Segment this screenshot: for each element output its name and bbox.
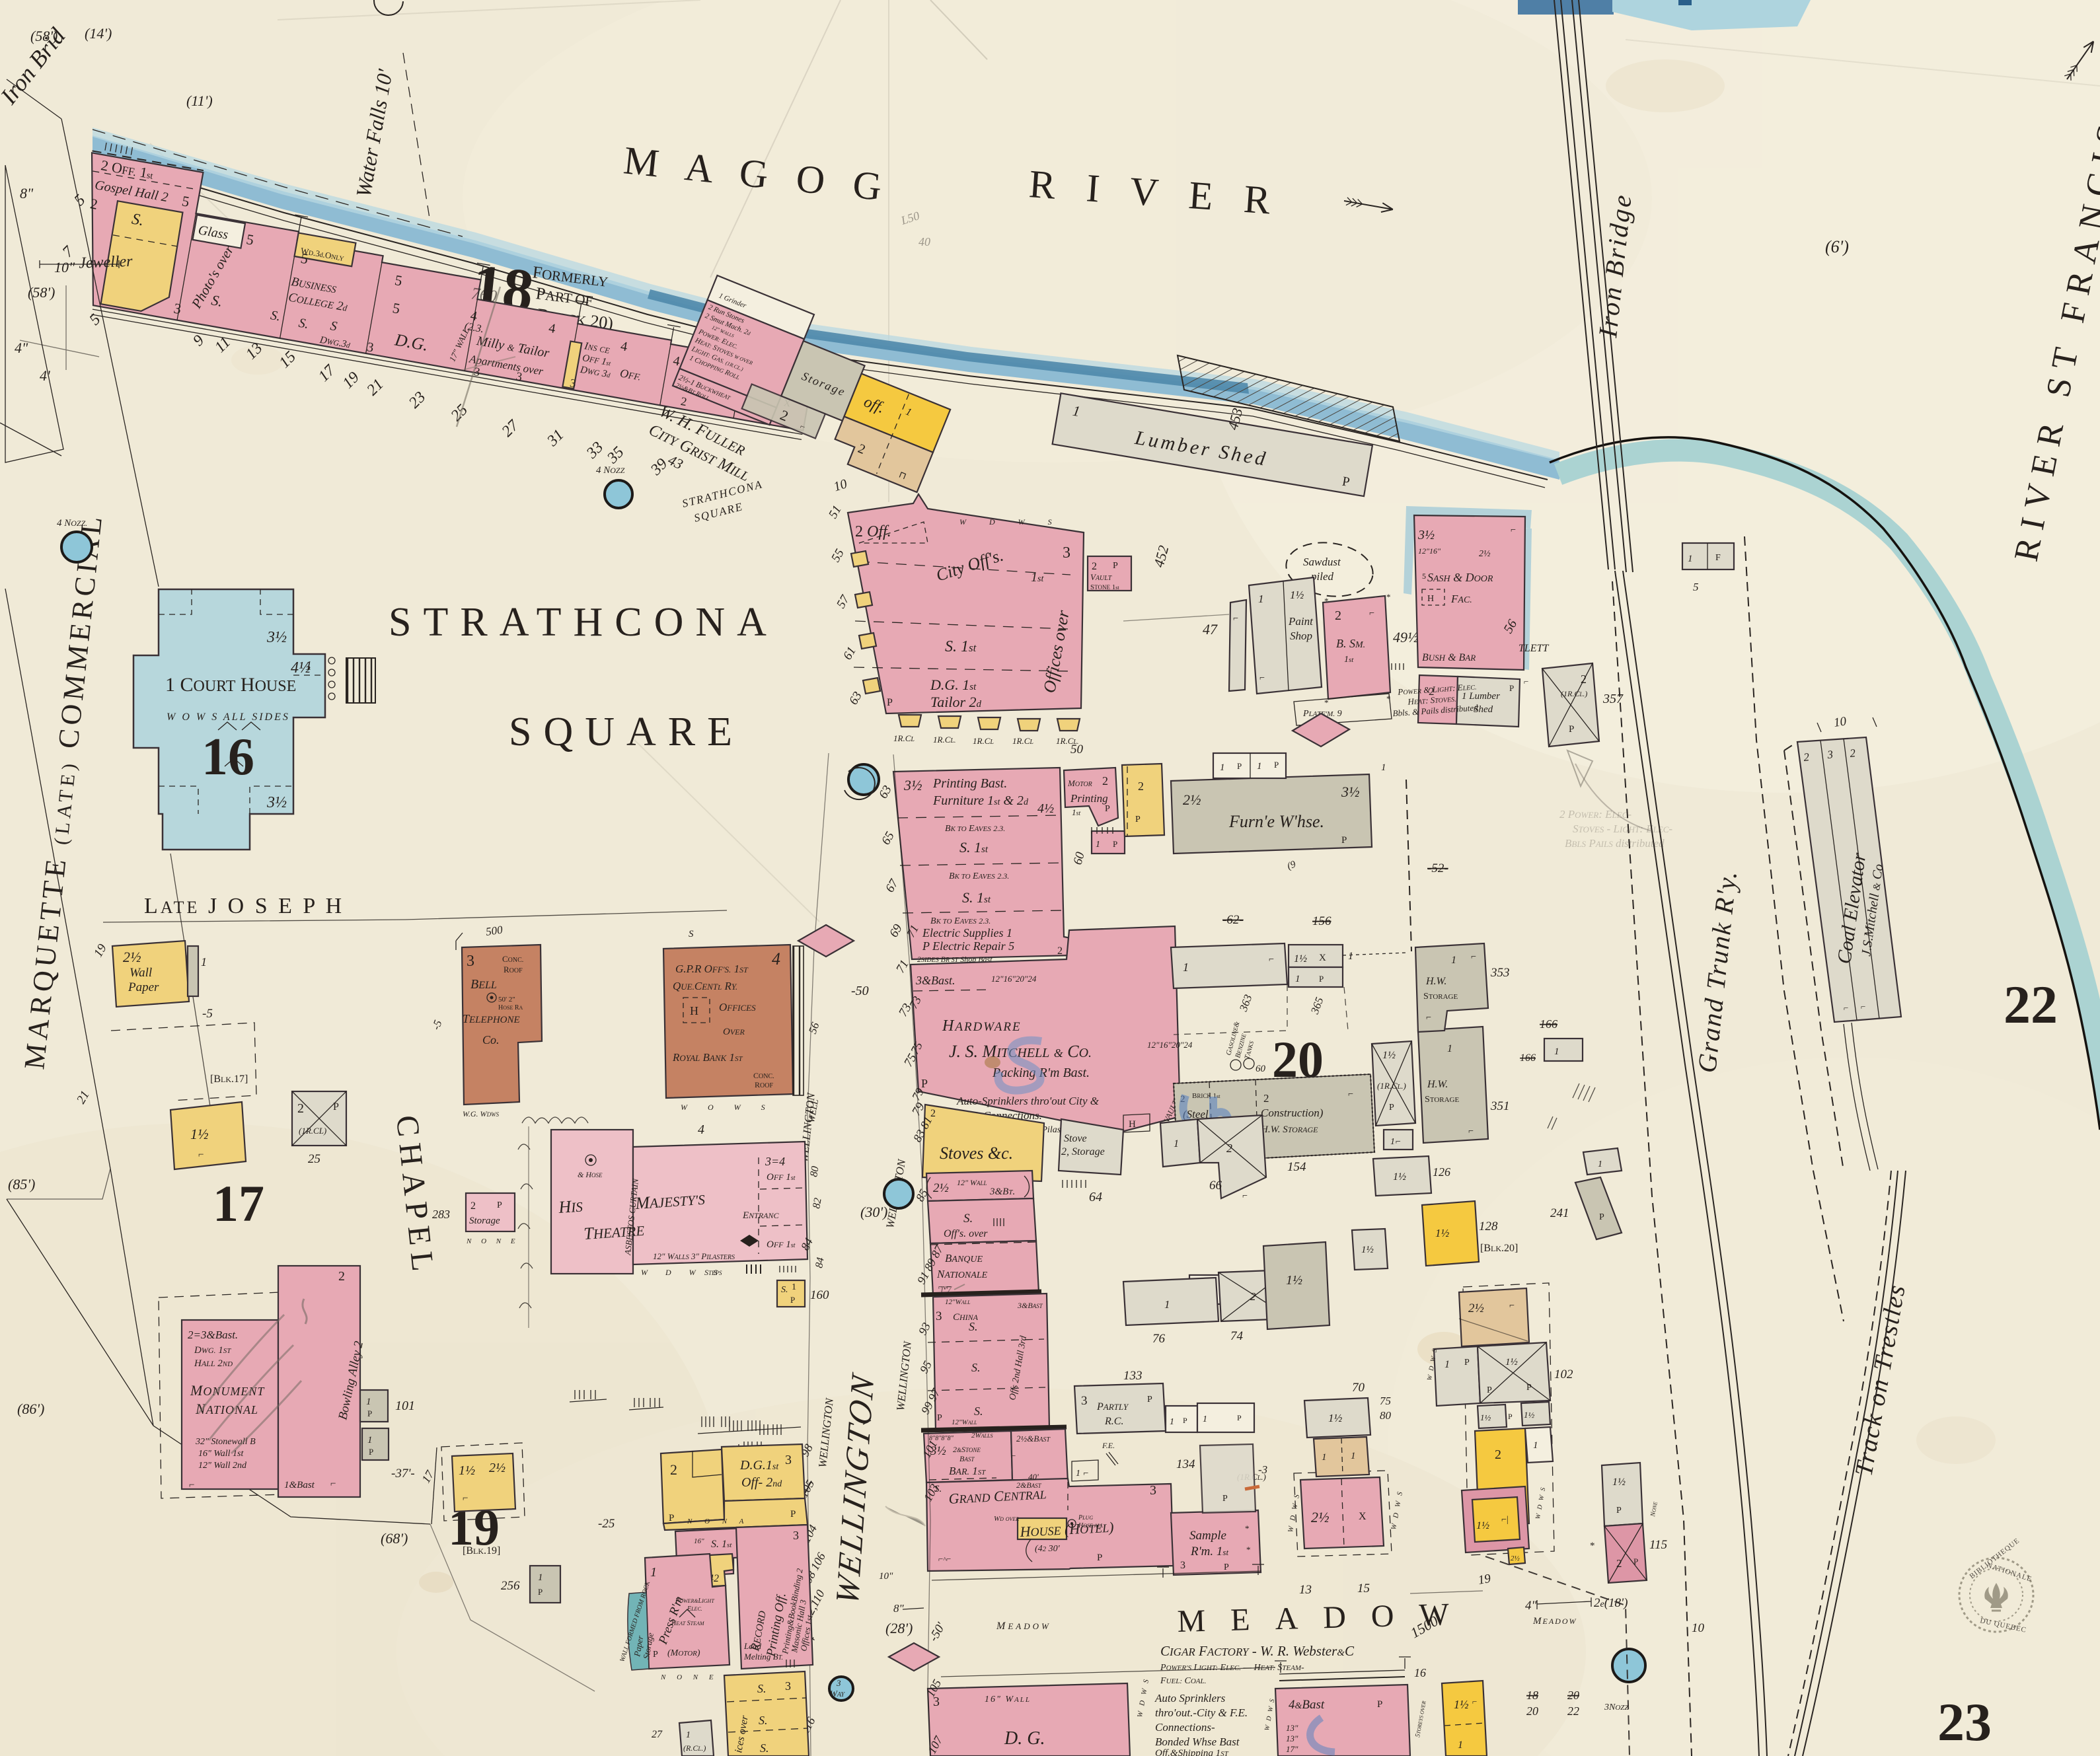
svg-text:BBLS PAILS distributed: BBLS PAILS distributed <box>1565 837 1665 850</box>
svg-text:10: 10 <box>1833 714 1848 730</box>
svg-text:12"16"20"24: 12"16"20"24 <box>991 974 1037 984</box>
svg-text:BK TO EAVES 2.3.: BK TO EAVES 2.3. <box>945 824 1005 834</box>
svg-text:P: P <box>1222 1494 1228 1504</box>
svg-text:2 Off.: 2 Off. <box>855 523 891 540</box>
svg-text:(11'): (11') <box>186 92 213 109</box>
svg-text:1: 1 <box>1170 1417 1174 1427</box>
svg-text:MONUMENT: MONUMENT <box>190 1382 265 1399</box>
svg-text:256: 256 <box>501 1579 520 1593</box>
svg-text:FUEL: COAL.: FUEL: COAL. <box>1160 1676 1206 1686</box>
svg-text:2=3&Bast.: 2=3&Bast. <box>188 1329 238 1341</box>
svg-text:2½: 2½ <box>1311 1509 1330 1525</box>
svg-text:[BLK.17]: [BLK.17] <box>210 1074 248 1085</box>
svg-text:1: 1 <box>792 1282 796 1292</box>
svg-text:P: P <box>1464 1358 1470 1368</box>
svg-text:STEPS: STEPS <box>704 1268 722 1277</box>
svg-text:N O N E: N O N E <box>466 1237 519 1245</box>
svg-text:CONC.: CONC. <box>753 1071 774 1080</box>
svg-text:⌐: ⌐ <box>1509 1301 1515 1311</box>
svg-text:H: H <box>690 1004 698 1017</box>
svg-text:128: 128 <box>1479 1220 1498 1233</box>
svg-text:23: 23 <box>1937 1692 1992 1752</box>
svg-text:Furniture 1st & 2d: Furniture 1st & 2d <box>932 793 1029 808</box>
svg-text:P: P <box>937 1413 942 1423</box>
svg-text:160: 160 <box>810 1288 829 1302</box>
svg-text:TLETT: TLETT <box>1519 643 1549 654</box>
svg-text:(85'): (85') <box>8 1176 35 1192</box>
svg-text:Sample: Sample <box>1189 1529 1226 1543</box>
svg-text:80: 80 <box>808 1165 821 1178</box>
svg-text:SQUARE: SQUARE <box>509 710 744 754</box>
svg-text:P: P <box>1274 760 1279 770</box>
svg-text:P: P <box>1135 815 1141 824</box>
svg-text:353: 353 <box>1490 966 1510 980</box>
svg-text:*: * <box>1245 1523 1250 1533</box>
svg-text:⌐: ⌐ <box>1011 1451 1016 1461</box>
svg-text:1: 1 <box>1322 1452 1327 1463</box>
svg-text:2, Storage: 2, Storage <box>1061 1146 1105 1157</box>
svg-text:P: P <box>1341 835 1347 846</box>
svg-text:8": 8" <box>893 1602 905 1615</box>
svg-text:16: 16 <box>1414 1666 1426 1679</box>
svg-text:80: 80 <box>1380 1409 1392 1422</box>
svg-text:STORAGE: STORAGE <box>1425 1095 1459 1105</box>
svg-text:F.E.: F.E. <box>1102 1441 1115 1450</box>
svg-text:⌐: ⌐ <box>1242 1191 1248 1201</box>
svg-text:Connections-: Connections- <box>1155 1721 1215 1734</box>
svg-text:4": 4" <box>1525 1599 1538 1613</box>
svg-text:1&Bast: 1&Bast <box>284 1480 315 1490</box>
svg-text:P: P <box>1105 804 1110 814</box>
svg-text:P: P <box>1224 1562 1229 1572</box>
svg-text:154: 154 <box>1287 1160 1306 1174</box>
svg-text:357: 357 <box>1602 692 1624 706</box>
svg-text:4: 4 <box>698 1122 704 1137</box>
svg-text:2: 2 <box>930 1108 936 1119</box>
svg-text:2: 2 <box>297 1101 304 1116</box>
svg-text:3: 3 <box>1826 748 1833 761</box>
svg-text:Auto-Sprinklers thro'out City: Auto-Sprinklers thro'out City & <box>956 1095 1100 1107</box>
svg-text:Construction): Construction) <box>1261 1107 1324 1119</box>
svg-text:18: 18 <box>1526 1689 1538 1702</box>
svg-text:16" Wall 1st: 16" Wall 1st <box>198 1449 244 1459</box>
svg-text:1: 1 <box>1220 762 1225 773</box>
svg-text:15: 15 <box>1357 1582 1370 1595</box>
svg-text:1½: 1½ <box>1480 1412 1491 1422</box>
svg-text:3&Bast.: 3&Bast. <box>915 974 956 987</box>
svg-text:84: 84 <box>813 1257 827 1269</box>
svg-text:166: 166 <box>1540 1017 1557 1031</box>
svg-text:3: 3 <box>1081 1394 1088 1408</box>
svg-text:POWER'S LIGHT: ELEC. — HEAT: S: POWER'S LIGHT: ELEC. — HEAT: STEAM- <box>1160 1663 1304 1673</box>
svg-text:CIGAR FACTORY - W. R. Webster&: CIGAR FACTORY - W. R. Webster&C <box>1160 1643 1355 1659</box>
svg-text:2½: 2½ <box>1183 791 1201 808</box>
svg-text:-50: -50 <box>851 984 869 998</box>
svg-text:16: 16 <box>202 728 254 786</box>
svg-text:X: X <box>1359 1511 1367 1522</box>
svg-text:2: 2 <box>1250 1290 1256 1303</box>
svg-text:17: 17 <box>213 1175 264 1232</box>
svg-text:(30'): (30') <box>860 1204 887 1220</box>
svg-text:⌐: ⌐ <box>1861 1002 1865 1011</box>
svg-text:HOSE RA: HOSE RA <box>498 1004 523 1011</box>
svg-text:H.W.: H.W. <box>1425 976 1446 987</box>
svg-text:3½: 3½ <box>903 777 922 793</box>
svg-text:1: 1 <box>1203 1414 1207 1424</box>
svg-text:1: 1 <box>1258 593 1264 605</box>
svg-text:3: 3 <box>1150 1483 1156 1498</box>
svg-text:1: 1 <box>367 1435 373 1445</box>
svg-text:⌐: ⌐ <box>1233 614 1238 624</box>
svg-text:PLUG: PLUG <box>1078 1514 1093 1521</box>
svg-text:101: 101 <box>395 1399 415 1413</box>
svg-text:⌐: ⌐ <box>1269 955 1274 965</box>
svg-text:STOVES - LIGHT: ELEC-: STOVES - LIGHT: ELEC- <box>1573 823 1672 835</box>
svg-text:2: 2 <box>1092 561 1097 572</box>
svg-text:2: 2 <box>1616 1557 1622 1570</box>
svg-text:⌐: ⌐ <box>330 1479 336 1489</box>
svg-text:S.: S. <box>781 1285 788 1295</box>
svg-text:2½: 2½ <box>1511 1555 1520 1562</box>
svg-text:12"WALL: 12"WALL <box>952 1418 977 1426</box>
svg-text:1: 1 <box>650 1565 657 1580</box>
svg-text:2: 2 <box>338 1269 345 1284</box>
svg-text:S: S <box>689 929 699 939</box>
svg-text:2: 2 <box>1263 1092 1269 1105</box>
svg-text:P: P <box>1113 839 1117 849</box>
svg-text:ROOF: ROOF <box>755 1080 773 1089</box>
svg-text:17": 17" <box>1286 1744 1298 1754</box>
svg-text:P: P <box>1097 1553 1102 1563</box>
svg-text:⌐: ⌐ <box>198 1150 204 1160</box>
svg-text:4": 4" <box>15 340 28 356</box>
svg-text:P: P <box>1508 1412 1513 1421</box>
svg-text:W D W S: W D W S <box>959 517 1063 527</box>
svg-text:Electric Supplies 1: Electric Supplies 1 <box>922 926 1012 939</box>
svg-text:(28'): (28') <box>885 1620 913 1636</box>
svg-text:1: 1 <box>305 659 312 673</box>
svg-text:W O W S ALL SIDES: W O W S ALL SIDES <box>167 712 290 723</box>
svg-text:Furn'e W'hse.: Furn'e W'hse. <box>1228 812 1324 831</box>
svg-text:1: 1 <box>1381 762 1386 773</box>
svg-text:W.G. WDWS: W.G. WDWS <box>463 1109 500 1118</box>
svg-text:4 NOZZ.: 4 NOZZ. <box>57 518 87 529</box>
svg-text:3: 3 <box>785 1679 791 1693</box>
svg-text:3: 3 <box>936 1309 942 1323</box>
svg-text:(6'): (6') <box>1825 237 1849 256</box>
svg-text:Jeweller: Jeweller <box>79 253 133 272</box>
svg-text:2: 2 <box>1495 1447 1501 1462</box>
svg-text:2: 2 <box>1581 673 1587 686</box>
svg-text:17: 17 <box>938 1284 952 1298</box>
svg-text:2½: 2½ <box>1468 1301 1484 1315</box>
svg-text:2: 2 <box>1138 780 1144 793</box>
svg-text:3½: 3½ <box>1341 784 1360 800</box>
svg-text:BAST: BAST <box>959 1454 975 1463</box>
svg-text:MEADOW: MEADOW <box>1532 1616 1577 1627</box>
svg-text:⌐: ⌐ <box>1348 1089 1353 1099</box>
svg-text:1½: 1½ <box>1476 1520 1489 1531</box>
svg-text:241: 241 <box>1550 1206 1569 1220</box>
svg-text:(14'): (14') <box>85 25 112 42</box>
svg-text:P: P <box>497 1200 502 1210</box>
svg-text:115: 115 <box>1649 1538 1667 1552</box>
svg-text:3½: 3½ <box>1417 528 1435 542</box>
svg-text:10: 10 <box>1692 1621 1705 1635</box>
svg-text:1st: 1st <box>1344 655 1354 665</box>
svg-text:20: 20 <box>1526 1704 1538 1718</box>
svg-text:2: 2 <box>1057 945 1063 957</box>
svg-text:1½: 1½ <box>190 1126 209 1142</box>
svg-text:1½: 1½ <box>1286 1273 1302 1288</box>
svg-text:1: 1 <box>1598 1159 1602 1169</box>
svg-text:13: 13 <box>1299 1583 1312 1597</box>
svg-text:POWER&LIGHT: POWER&LIGHT <box>675 1597 714 1605</box>
svg-text:4': 4' <box>40 367 50 384</box>
svg-text:1: 1 <box>1348 951 1353 962</box>
svg-text:STRATHCONA: STRATHCONA <box>389 600 778 645</box>
svg-text:3&BT.: 3&BT. <box>989 1187 1015 1197</box>
svg-text:ROYAL BANK 1ST: ROYAL BANK 1ST <box>672 1051 743 1064</box>
svg-text:⌐: ⌐ <box>1369 608 1374 618</box>
svg-text:-52-: -52- <box>1427 861 1448 875</box>
svg-text:(58'): (58') <box>28 284 55 301</box>
svg-text:STONE 1st: STONE 1st <box>1090 583 1119 591</box>
svg-text:2e(18'): 2e(18') <box>1594 1596 1628 1610</box>
svg-text:ENTRANC: ENTRANC <box>742 1210 780 1221</box>
svg-text:H.W. STORAGE: H.W. STORAGE <box>1260 1124 1318 1135</box>
svg-text:12"WALL: 12"WALL <box>945 1298 971 1306</box>
svg-text:13": 13" <box>1286 1723 1298 1733</box>
svg-text:134: 134 <box>1176 1457 1195 1471</box>
svg-text:Printing: Printing <box>1070 792 1108 805</box>
svg-text:2½: 2½ <box>933 1181 949 1195</box>
svg-text:(1R.CL): (1R.CL) <box>299 1126 326 1136</box>
svg-text:P: P <box>1633 1556 1638 1566</box>
svg-text:Storage: Storage <box>469 1216 500 1226</box>
svg-text:HIS: HIS <box>557 1196 583 1217</box>
svg-text:BUSH & BAR: BUSH & BAR <box>1422 652 1476 663</box>
svg-text:⌐: ⌐ <box>1468 1126 1474 1136</box>
svg-text:133: 133 <box>1123 1369 1143 1383</box>
svg-text:1: 1 <box>1351 1451 1356 1461</box>
svg-text:R.C.: R.C. <box>1104 1416 1123 1427</box>
svg-text:P: P <box>1599 1212 1604 1222</box>
svg-text:P: P <box>1616 1506 1622 1516</box>
svg-text:P: P <box>1509 683 1514 693</box>
svg-text:75: 75 <box>1380 1395 1391 1407</box>
svg-text:1½: 1½ <box>1290 589 1304 601</box>
svg-text:P: P <box>1487 1385 1492 1395</box>
svg-text:126: 126 <box>1433 1165 1450 1179</box>
svg-text:500: 500 <box>485 924 504 938</box>
svg-text:D. G.: D. G. <box>1004 1728 1045 1749</box>
svg-text:3: 3 <box>836 1678 841 1688</box>
svg-text:S.: S. <box>974 1405 983 1418</box>
svg-text:13": 13" <box>1286 1734 1298 1743</box>
svg-text:BELL: BELL <box>470 977 497 992</box>
svg-text:OVER: OVER <box>723 1027 745 1037</box>
svg-text:Off's. over: Off's. over <box>944 1228 988 1239</box>
svg-text:STORAGE: STORAGE <box>1423 992 1458 1002</box>
svg-text:(58'): (58') <box>30 28 57 44</box>
svg-text:BK TO EAVES 2.3.: BK TO EAVES 2.3. <box>930 916 991 926</box>
svg-text:P: P <box>1377 1699 1382 1710</box>
svg-text:70: 70 <box>1352 1381 1365 1395</box>
svg-text:*: * <box>1386 592 1391 602</box>
svg-text:P: P <box>790 1295 795 1305</box>
svg-text:16": 16" <box>694 1537 704 1545</box>
svg-text:2WALLS: 2WALLS <box>971 1432 993 1440</box>
svg-text:DWG. 1ST: DWG. 1ST <box>194 1345 231 1356</box>
svg-text:P: P <box>367 1408 372 1418</box>
svg-text:Bonded Whse Bast: Bonded Whse Bast <box>1155 1736 1240 1748</box>
svg-text:3: 3 <box>1180 1560 1185 1571</box>
svg-text:25: 25 <box>308 1152 320 1166</box>
svg-text:2: 2 <box>1102 774 1108 787</box>
svg-text:OFFICES: OFFICES <box>719 1001 756 1013</box>
svg-text:66: 66 <box>1209 1179 1222 1192</box>
svg-text:P: P <box>887 697 893 708</box>
svg-text:⌐: ⌐ <box>1524 677 1528 686</box>
svg-text:Tailor 2d: Tailor 2d <box>930 694 982 710</box>
svg-text:3NOZZ: 3NOZZ <box>1604 1702 1629 1712</box>
svg-text:P: P <box>1237 761 1242 771</box>
svg-text:F: F <box>1715 553 1721 563</box>
svg-text:⌐: ⌐ <box>189 1480 194 1490</box>
svg-text:2½: 2½ <box>123 949 141 965</box>
svg-text:3=4: 3=4 <box>765 1155 785 1168</box>
svg-text:2: 2 <box>1226 1142 1232 1155</box>
svg-text:N O N E: N O N E <box>660 1673 718 1681</box>
svg-text:20: 20 <box>1567 1689 1579 1702</box>
svg-text:P: P <box>1237 1413 1242 1422</box>
svg-text:(86'): (86') <box>17 1401 44 1417</box>
svg-text:50: 50 <box>1070 743 1084 756</box>
svg-text:⌐|: ⌐| <box>1501 1515 1509 1525</box>
svg-text:Wall: Wall <box>130 966 152 980</box>
svg-text:P: P <box>790 1509 796 1519</box>
svg-text:3: 3 <box>785 1453 792 1467</box>
svg-text:2 POWER: ELEC-: 2 POWER: ELEC- <box>1559 808 1631 821</box>
svg-text:P: P <box>669 1513 674 1523</box>
svg-text:Off.&Shipping 1ST: Off.&Shipping 1ST <box>1155 1748 1229 1756</box>
svg-text:-37'-: -37'- <box>391 1467 415 1481</box>
svg-text:1½: 1½ <box>1382 1050 1396 1061</box>
svg-text:P: P <box>333 1101 339 1113</box>
svg-text:4 NOZZ: 4 NOZZ <box>596 465 625 476</box>
svg-text:P: P <box>1526 1383 1532 1393</box>
svg-text:166: 166 <box>1520 1052 1536 1064</box>
svg-text:2: 2 <box>1335 608 1341 623</box>
svg-text:Melting BT.: Melting BT. <box>743 1652 783 1662</box>
svg-text:3½: 3½ <box>266 629 287 646</box>
svg-text:27: 27 <box>652 1729 663 1740</box>
svg-text:*: * <box>1590 1541 1595 1551</box>
svg-text:12" Wall 2nd: 12" Wall 2nd <box>198 1461 247 1471</box>
svg-text:*: * <box>1324 596 1329 606</box>
svg-text:1: 1 <box>1447 1043 1452 1054</box>
svg-text:1½: 1½ <box>1612 1477 1626 1488</box>
svg-text:-25: -25 <box>598 1517 615 1531</box>
svg-text:82: 82 <box>811 1197 824 1210</box>
svg-text:1: 1 <box>1451 955 1456 966</box>
svg-text:Paper: Paper <box>128 980 159 994</box>
svg-text:PARTLY: PARTLY <box>1096 1401 1129 1412</box>
svg-text:LATE J O S E P H: LATE J O S E P H <box>144 894 344 918</box>
svg-text:(R.CL.): (R.CL.) <box>683 1743 706 1753</box>
svg-text:X: X <box>1319 953 1326 963</box>
svg-text:-3: -3 <box>1258 1463 1267 1476</box>
svg-text:(MOTOR): (MOTOR) <box>667 1648 700 1658</box>
svg-text:5: 5 <box>1693 581 1699 593</box>
svg-text:1: 1 <box>1554 1046 1559 1057</box>
svg-text:[BLK.20]: [BLK.20] <box>1480 1243 1518 1254</box>
svg-text:1½: 1½ <box>1361 1245 1374 1255</box>
svg-text:P: P <box>921 1077 928 1090</box>
svg-text:(68'): (68') <box>381 1530 408 1547</box>
svg-text:12"16": 12"16" <box>1418 546 1441 556</box>
svg-text:74: 74 <box>1230 1329 1244 1343</box>
svg-text:156: 156 <box>1312 914 1331 928</box>
svg-text:S.: S. <box>759 1714 768 1727</box>
svg-text:1½: 1½ <box>1435 1227 1450 1239</box>
svg-text:3: 3 <box>793 1529 799 1542</box>
svg-text:3&BAST: 3&BAST <box>1017 1301 1043 1310</box>
svg-text:⌐: ⌐ <box>1472 1697 1477 1706</box>
svg-text:P: P <box>369 1447 373 1457</box>
svg-text:Stove: Stove <box>1064 1133 1087 1144</box>
svg-text:1: 1 <box>1444 1359 1450 1370</box>
svg-text:thro'out.-City & F.E.: thro'out.-City & F.E. <box>1155 1706 1248 1719</box>
svg-text:47: 47 <box>1203 621 1218 638</box>
svg-text:⌐: ⌐ <box>1844 1003 1848 1013</box>
svg-text:76: 76 <box>1152 1332 1166 1346</box>
svg-text:N O N A: N O N A <box>687 1518 749 1525</box>
svg-text:1⌐: 1⌐ <box>1390 1137 1401 1147</box>
svg-text:2: 2 <box>670 1461 677 1478</box>
svg-text:10": 10" <box>879 1571 893 1582</box>
svg-text:P: P <box>1183 1416 1187 1425</box>
svg-text:22: 22 <box>1567 1704 1579 1718</box>
svg-text:P: P <box>653 1650 658 1660</box>
svg-text:Shop: Shop <box>1290 630 1312 642</box>
svg-text:P: P <box>538 1587 543 1597</box>
svg-text:2½: 2½ <box>1479 549 1491 559</box>
svg-text:*: * <box>1246 1545 1251 1555</box>
svg-text:1½: 1½ <box>1328 1412 1343 1424</box>
svg-text:[BLK.19]: [BLK.19] <box>463 1545 500 1556</box>
svg-text:P: P <box>1319 974 1324 984</box>
svg-text:4½: 4½ <box>1037 801 1054 816</box>
svg-text:351: 351 <box>1490 1099 1510 1113</box>
svg-text:1 ⌐: 1 ⌐ <box>1076 1469 1089 1479</box>
svg-text:1 Lumber: 1 Lumber <box>1462 691 1500 702</box>
svg-text:(42 30': (42 30' <box>1035 1544 1061 1554</box>
svg-text:3: 3 <box>467 953 474 970</box>
svg-text:⌐: ⌐ <box>1426 1013 1431 1023</box>
svg-text:2½: 2½ <box>489 1461 506 1475</box>
svg-text:Lead: Lead <box>743 1641 762 1651</box>
svg-text:P: P <box>1569 724 1574 735</box>
svg-text:16" WALL: 16" WALL <box>985 1695 1031 1704</box>
svg-text:WD OVER: WD OVER <box>994 1515 1019 1523</box>
svg-text:S.: S. <box>963 1212 973 1226</box>
svg-text:64: 64 <box>1089 1190 1102 1204</box>
svg-text:HARDWARE: HARDWARE <box>942 1017 1022 1035</box>
svg-text:H.W.: H.W. <box>1427 1079 1448 1090</box>
svg-text:50' 2": 50' 2" <box>498 996 515 1004</box>
